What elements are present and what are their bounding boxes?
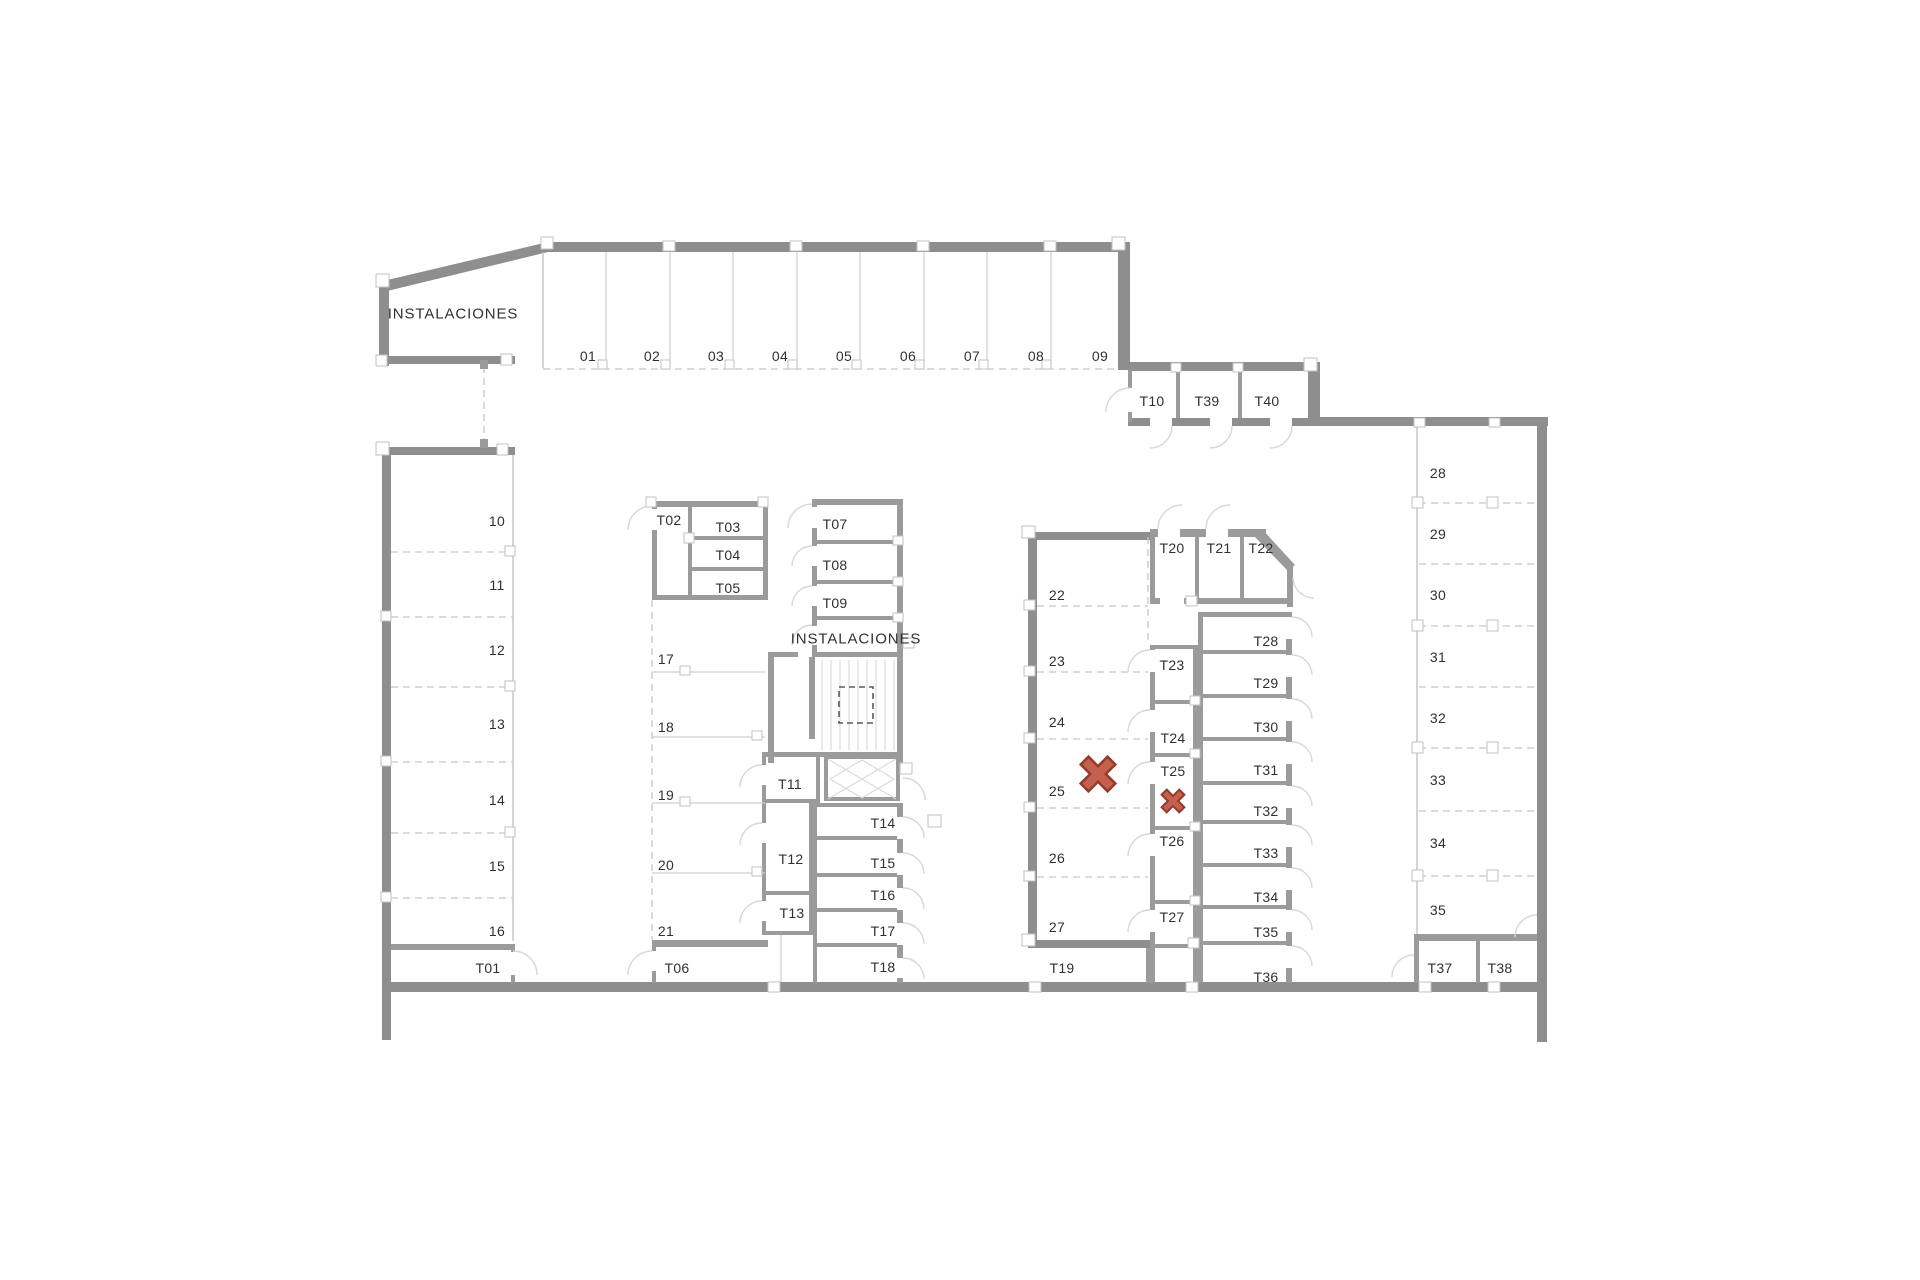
x-marker-large	[1071, 747, 1125, 801]
storage-room-label-t03: T03	[715, 519, 740, 535]
storage-room-label-t02: T02	[656, 512, 681, 528]
pillars	[376, 237, 1500, 992]
storage-room-label-t39: T39	[1194, 393, 1219, 409]
parking-space-label-21: 21	[658, 923, 674, 939]
parking-space-label-10: 10	[489, 513, 505, 529]
storage-room-label-t31: T31	[1253, 762, 1278, 778]
stair-core	[822, 660, 894, 750]
door-arcs	[513, 388, 1537, 979]
storage-room-label-t36: T36	[1253, 969, 1278, 985]
parking-space-label-35: 35	[1430, 902, 1446, 918]
parking-space-label-15: 15	[489, 858, 505, 874]
elevator-symbol	[828, 759, 896, 799]
parking-space-label-09: 09	[1092, 348, 1108, 364]
storage-room-label-t35: T35	[1253, 924, 1278, 940]
parking-space-label-02: 02	[644, 348, 660, 364]
storage-room-label-t04: T04	[715, 547, 740, 563]
storage-room-label-t23: T23	[1159, 657, 1184, 673]
parking-space-label-32: 32	[1430, 710, 1446, 726]
parking-space-label-05: 05	[836, 348, 852, 364]
parking-space-label-29: 29	[1430, 526, 1446, 542]
storage-room-label-t18: T18	[870, 959, 895, 975]
storage-room-label-t22: T22	[1248, 540, 1273, 556]
parking-space-label-14: 14	[489, 792, 505, 808]
parking-space-label-23: 23	[1049, 653, 1065, 669]
parking-space-label-13: 13	[489, 716, 505, 732]
storage-room-label-t37: T37	[1427, 960, 1452, 976]
parking-space-label-07: 07	[964, 348, 980, 364]
storage-room-label-t09: T09	[822, 595, 847, 611]
parking-space-label-24: 24	[1049, 714, 1065, 730]
x-marker-small	[1155, 783, 1190, 818]
floorplan-drawing	[0, 0, 1920, 1280]
parking-space-label-03: 03	[708, 348, 724, 364]
parking-space-label-01: 01	[580, 348, 596, 364]
storage-room-label-t24: T24	[1160, 730, 1185, 746]
floor-plan-canvas: INSTALACIONES INSTALACIONES 01 02 03 04 …	[0, 0, 1920, 1280]
storage-room-label-t05: T05	[715, 580, 740, 596]
storage-room-label-t19: T19	[1049, 960, 1074, 976]
parking-space-label-16: 16	[489, 923, 505, 939]
parking-space-label-33: 33	[1430, 772, 1446, 788]
storage-room-label-t16: T16	[870, 887, 895, 903]
storage-room-label-t29: T29	[1253, 675, 1278, 691]
parking-space-label-25: 25	[1049, 783, 1065, 799]
room-label-instalaciones-middle: INSTALACIONES	[791, 631, 922, 648]
storage-room-label-t11: T11	[778, 776, 802, 792]
storage-room-label-t12: T12	[778, 851, 803, 867]
parking-space-label-04: 04	[772, 348, 788, 364]
storage-room-label-t28: T28	[1253, 633, 1278, 649]
storage-room-label-t30: T30	[1253, 719, 1278, 735]
room-label-instalaciones-upper: INSTALACIONES	[388, 306, 519, 323]
storage-room-label-t25: T25	[1160, 763, 1185, 779]
parking-space-label-26: 26	[1049, 850, 1065, 866]
parking-space-label-20: 20	[658, 857, 674, 873]
storage-room-label-t08: T08	[822, 557, 847, 573]
parking-space-label-17: 17	[658, 651, 674, 667]
storage-room-label-t07: T07	[822, 516, 847, 532]
parking-space-label-28: 28	[1430, 465, 1446, 481]
storage-room-label-t10: T10	[1139, 393, 1164, 409]
parking-space-label-34: 34	[1430, 835, 1446, 851]
parking-space-label-12: 12	[489, 642, 505, 658]
parking-space-label-30: 30	[1430, 587, 1446, 603]
storage-room-label-t13: T13	[779, 905, 804, 921]
storage-room-label-t06: T06	[664, 960, 689, 976]
storage-room-label-t14: T14	[870, 815, 895, 831]
storage-room-label-t32: T32	[1253, 803, 1278, 819]
parking-space-label-19: 19	[658, 787, 674, 803]
storage-room-label-t27: T27	[1159, 909, 1184, 925]
storage-room-label-t33: T33	[1253, 845, 1278, 861]
parking-space-label-11: 11	[489, 577, 504, 593]
storage-room-label-t01: T01	[475, 960, 500, 976]
parking-space-label-18: 18	[658, 719, 674, 735]
storage-room-label-t17: T17	[870, 923, 895, 939]
parking-space-label-22: 22	[1049, 587, 1065, 603]
storage-room-label-t20: T20	[1159, 540, 1184, 556]
storage-room-label-t15: T15	[870, 855, 895, 871]
storage-room-label-t38: T38	[1487, 960, 1512, 976]
storage-room-label-t34: T34	[1253, 889, 1278, 905]
parking-space-label-08: 08	[1028, 348, 1044, 364]
storage-room-label-t26: T26	[1159, 833, 1184, 849]
parking-space-label-27: 27	[1049, 919, 1065, 935]
parking-space-label-31: 31	[1430, 649, 1446, 665]
storage-room-label-t21: T21	[1206, 540, 1231, 556]
storage-room-walls	[391, 499, 1537, 983]
parking-space-label-06: 06	[900, 348, 916, 364]
storage-room-label-t40: T40	[1254, 393, 1279, 409]
